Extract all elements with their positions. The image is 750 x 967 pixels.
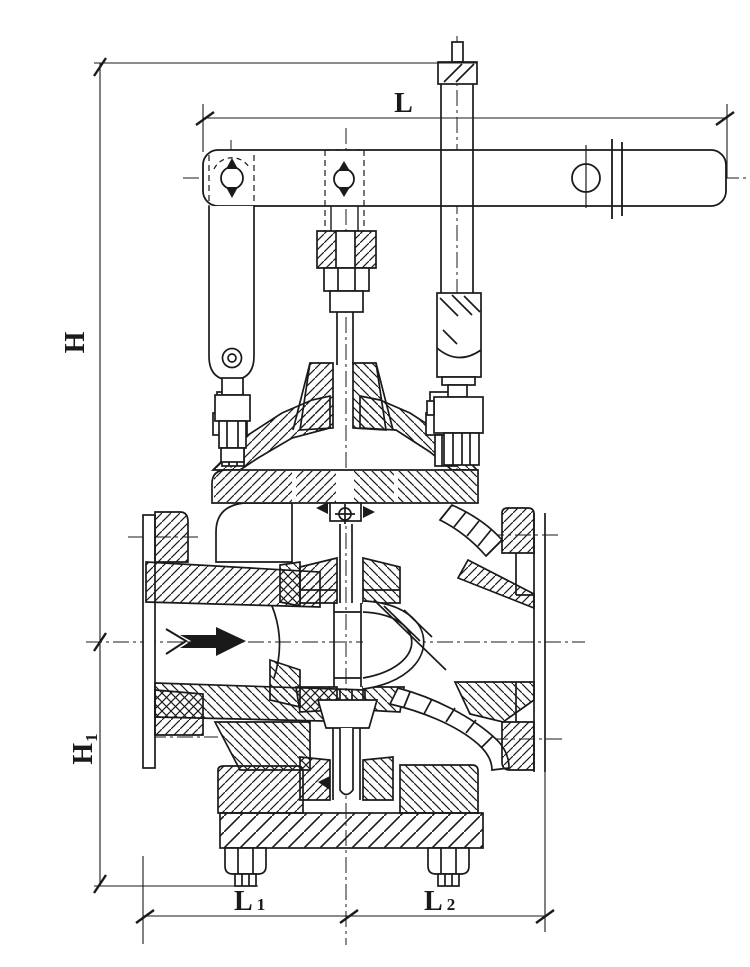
- outlet-upper-rib: [440, 505, 502, 556]
- upper-seat-support: [280, 562, 300, 606]
- packing-right: [353, 363, 386, 430]
- outlet-lower-wall: [455, 682, 534, 722]
- upper-seat-right: [363, 558, 400, 603]
- rod-adjust-nut: [434, 397, 483, 433]
- lever-assembly: [203, 139, 726, 231]
- label-H: H: [60, 331, 91, 354]
- body-left-shoulder: [216, 503, 292, 562]
- outlet-flange: [502, 508, 545, 772]
- label-L2: L2: [424, 886, 455, 917]
- label-L: L: [394, 88, 414, 119]
- stem-coupling: [316, 502, 375, 524]
- bottom-flange-plate: [220, 813, 483, 848]
- plug-hub: [334, 603, 361, 687]
- lower-seat-support: [270, 660, 300, 707]
- valve-body: [143, 503, 545, 886]
- weight-block: [437, 293, 481, 377]
- bottom-bolt-right: [428, 848, 469, 886]
- label-L1: L1: [234, 886, 265, 917]
- rod-top-stud: [452, 42, 463, 62]
- bottom-left-block: [218, 766, 303, 813]
- valve-plug: [363, 600, 446, 689]
- bonnet-assembly: [212, 363, 478, 524]
- valve-engineering-drawing: L H H1 L1 L2: [0, 0, 750, 967]
- lever-arm: [203, 150, 726, 206]
- body-lower-left-wall: [215, 722, 310, 770]
- outlet-upper-wall: [458, 560, 534, 608]
- bottom-bolt-left: [225, 848, 266, 886]
- link-pin-inner: [228, 354, 236, 362]
- upper-seat-left: [300, 558, 337, 603]
- label-H1: H1: [68, 733, 101, 764]
- packing-left: [300, 363, 333, 430]
- bottom-right-block: [400, 765, 478, 813]
- spindle-hex-nut: [324, 268, 369, 291]
- valve-cross-section-svg: L H H1 L1 L2: [0, 0, 750, 967]
- weight-rod-assembly: [427, 42, 483, 465]
